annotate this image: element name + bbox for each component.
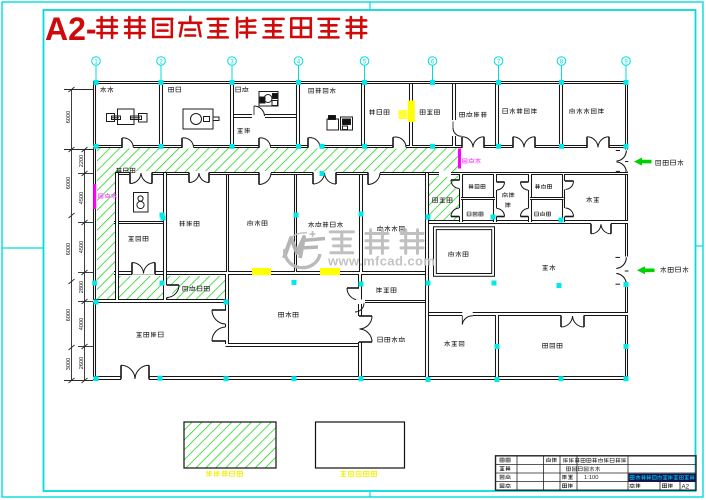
svg-text:2200: 2200 [79,155,85,167]
svg-text:4500: 4500 [79,241,85,253]
svg-text:www.mfcad.com: www.mfcad.com [327,254,435,269]
svg-text:6000: 6000 [66,309,72,321]
svg-text:6000: 6000 [66,111,72,123]
svg-text:2600: 2600 [79,357,85,369]
svg-text:A2-: A2- [45,11,97,47]
svg-text:2800: 2800 [79,281,85,293]
svg-text:1:100: 1:100 [584,475,599,481]
svg-text:4500: 4500 [79,192,85,204]
svg-text:A2: A2 [682,483,690,490]
svg-text:3000: 3000 [66,358,72,370]
svg-text:6000: 6000 [66,177,72,189]
svg-text:4000: 4000 [79,318,85,330]
svg-text:6000: 6000 [66,243,72,255]
